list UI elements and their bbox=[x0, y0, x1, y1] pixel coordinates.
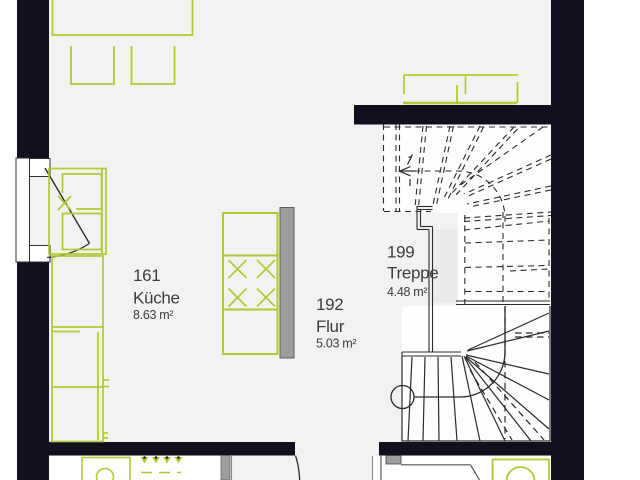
svg-text:199: 199 bbox=[387, 243, 414, 262]
svg-text:Treppe: Treppe bbox=[387, 264, 438, 283]
svg-text:192: 192 bbox=[316, 295, 343, 314]
svg-text:8.63 m²: 8.63 m² bbox=[133, 308, 173, 322]
svg-text:161: 161 bbox=[133, 266, 160, 285]
svg-text:Flur: Flur bbox=[316, 317, 345, 336]
svg-text:4.48 m²: 4.48 m² bbox=[387, 285, 427, 299]
svg-text:Küche: Küche bbox=[133, 289, 180, 308]
svg-text:5.03 m²: 5.03 m² bbox=[316, 337, 356, 351]
